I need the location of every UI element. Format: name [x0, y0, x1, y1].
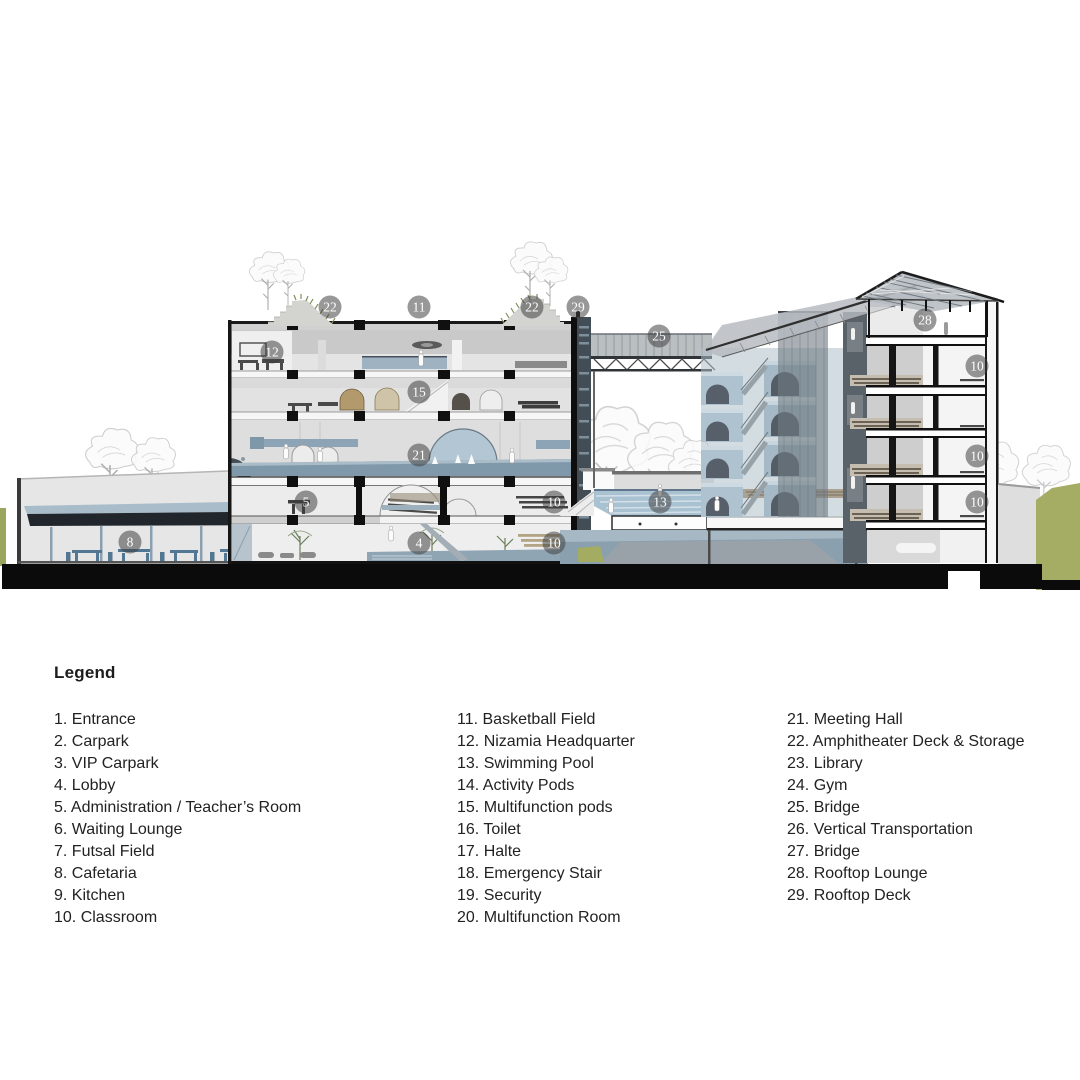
svg-text:13: 13 [653, 495, 667, 510]
svg-text:10: 10 [547, 536, 561, 551]
svg-text:11: 11 [413, 300, 426, 315]
svg-text:28: 28 [918, 313, 932, 328]
svg-text:8: 8 [127, 535, 134, 550]
svg-text:5: 5 [303, 495, 310, 510]
svg-text:4: 4 [416, 536, 423, 551]
svg-text:10: 10 [970, 449, 984, 464]
svg-text:10: 10 [970, 359, 984, 374]
svg-text:29: 29 [571, 300, 585, 315]
svg-text:12: 12 [265, 345, 279, 360]
svg-text:21: 21 [412, 448, 426, 463]
svg-text:25: 25 [652, 329, 666, 344]
svg-text:15: 15 [412, 385, 426, 400]
svg-text:22: 22 [323, 300, 337, 315]
svg-text:10: 10 [970, 495, 984, 510]
svg-text:10: 10 [547, 495, 561, 510]
svg-text:22: 22 [525, 300, 539, 315]
